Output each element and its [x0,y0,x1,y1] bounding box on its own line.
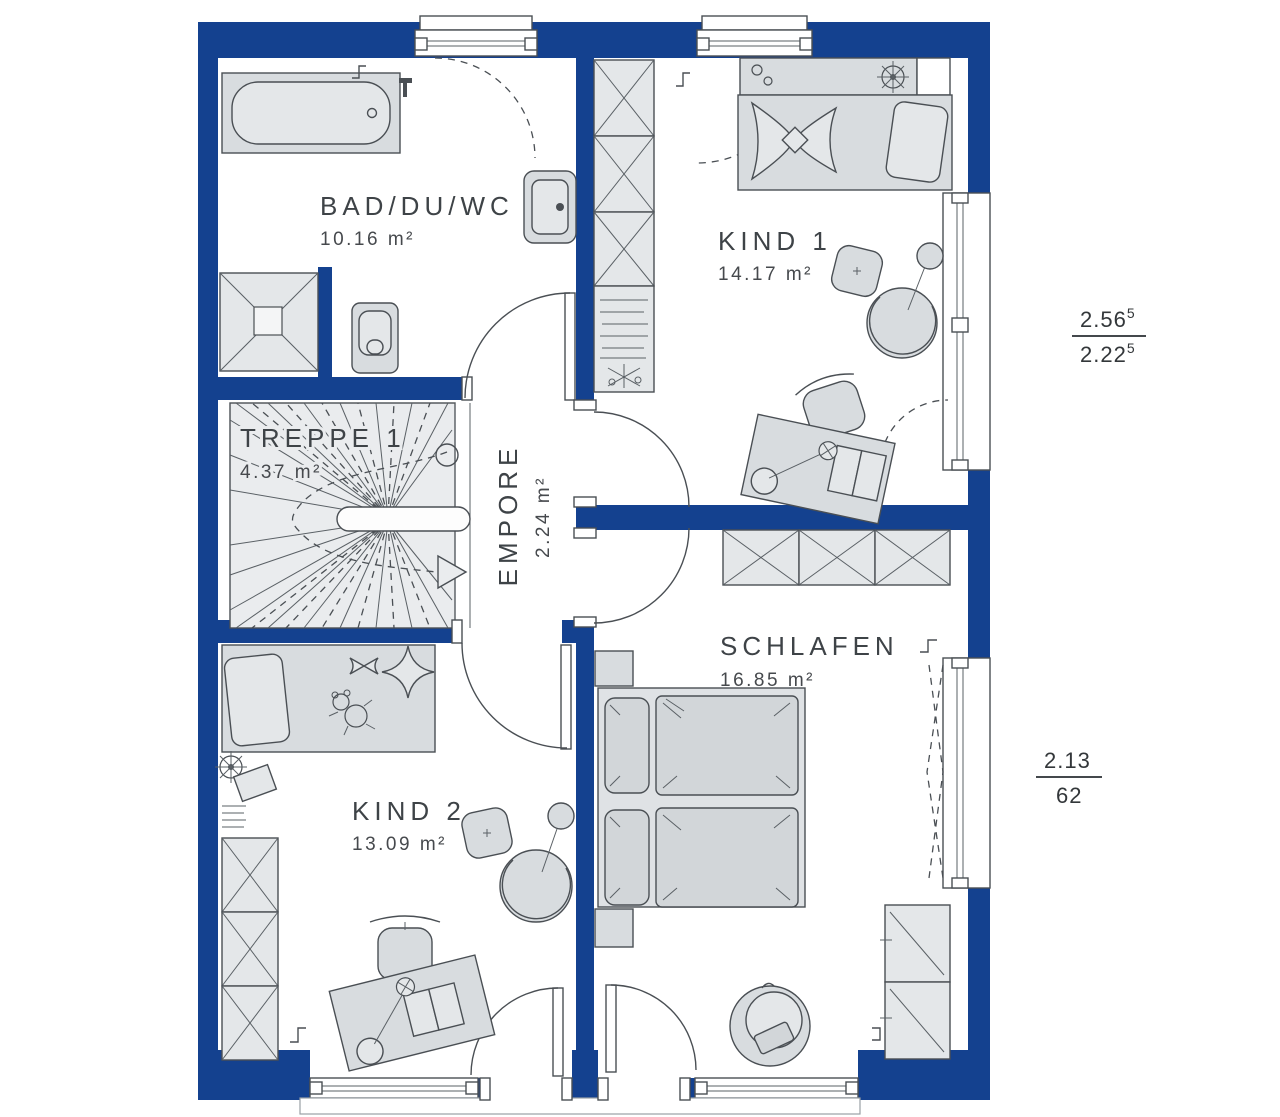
schlafen-furniture [595,530,950,1066]
kind1-shelf [594,286,654,392]
kind1-furniture [594,58,952,524]
kind1-bed [738,95,952,190]
dimension-lower: 2.13 62 [1036,748,1102,808]
room-label-kind2: KIND 2 [352,796,466,826]
wall-pillar-center [576,505,594,530]
wall-left [198,22,218,1100]
kind2-bed [222,645,435,752]
room-area-treppe: 4.37 m² [240,462,322,483]
toy-board [234,765,277,802]
kind2-stool [460,806,515,861]
door-kind1 [574,400,689,507]
swing-lines-schlafen-window [927,665,943,878]
kind2-desk [329,955,494,1071]
schlafen-wardrobe-right [880,905,950,1059]
pillow [605,810,649,905]
room-label-schlafen: SCHLAFEN [720,631,899,661]
room-area-schlafen: 16.85 m² [720,670,815,691]
wall-kind2-schlafen [576,625,594,1078]
room-area-kind1: 14.17 m² [718,264,813,285]
kind2-shelf [222,806,246,827]
terrace-slab [300,1098,860,1114]
stair-well [337,507,470,531]
wall-bath-kind1 [576,58,594,407]
schlafen-nightstand-2 [595,909,633,947]
window-kind1-right [943,193,990,470]
duvet [656,696,798,795]
pillow [885,101,949,184]
sink [524,171,576,243]
wall-top [198,22,990,58]
dimension-lower-denominator: 62 [1056,783,1082,808]
room-label-empore: EMPORE [493,444,523,587]
room-area-bad: 10.16 m² [320,229,415,250]
wall-notch-schlafen-icon [920,640,937,652]
kind2-furniture [215,645,574,1071]
kind1-nightstand [917,58,950,95]
lamp-icon [917,243,943,269]
floor-plan-drawing: BAD/DU/WC 10.16 m² KIND 1 14.17 m² TREPP… [0,0,1280,1117]
wall-pillar-bottom [572,1050,598,1100]
pillow [224,653,291,747]
shower [220,273,318,371]
schlafen-double-bed [598,688,805,907]
kind1-wall-shelf [740,58,917,95]
bathtub [222,73,412,153]
papasan-chair [730,983,810,1066]
wall-right [968,22,990,1100]
lamp-icon [548,803,574,829]
schlafen-wardrobe-top [723,530,950,585]
window-bath-top [415,16,537,56]
room-label-kind1: KIND 1 [718,226,832,256]
pillow [605,698,649,793]
room-label-bad: BAD/DU/WC [320,191,514,221]
wall-notch-schlafen2-icon [872,1028,880,1040]
wall-shower-stub [318,267,332,377]
kind1-closet [594,60,654,286]
toilet [352,303,398,373]
dimension-upper-denominator: 2.225 [1080,340,1136,367]
window-schlafen-right [943,658,990,888]
door-bath [462,293,575,400]
window-schlafen-bottom [695,1078,858,1098]
shower-drain-icon [254,307,282,335]
dimension-lower-numerator: 2.13 [1044,748,1091,773]
wall-kind1-schlafen [594,505,968,530]
window-kind2-bottom [310,1078,478,1098]
faucet-icon [399,78,412,83]
swing-arc-bath-window [435,58,535,158]
door-kind2 [452,620,571,749]
kind2-swivel-chair [500,803,574,922]
window-kind1-top [697,16,812,56]
kind1-stool [829,243,885,299]
wall-notch-kind2-icon [290,1028,306,1042]
schlafen-nightstand-1 [595,651,633,686]
balcony-door-opening-kind2 [480,1078,572,1100]
balcony-door-opening-schlafen [598,1078,690,1100]
wall-bath-bottom [218,377,470,400]
door-schlafen [574,528,689,627]
room-area-empore: 2.24 m² [533,476,554,558]
dimension-upper-numerator: 2.565 [1080,305,1136,332]
ship-wheel-toy-icon [215,751,276,801]
wall-notch-kind1-icon [676,73,690,86]
room-label-treppe: TREPPE 1 [240,423,406,453]
floor-plan-canvas: BAD/DU/WC 10.16 m² KIND 1 14.17 m² TREPP… [0,0,1280,1117]
dimension-upper: 2.565 2.225 [1072,305,1146,367]
kind2-wardrobe [222,838,278,1060]
duvet [656,808,798,907]
room-area-kind2: 13.09 m² [352,834,447,855]
